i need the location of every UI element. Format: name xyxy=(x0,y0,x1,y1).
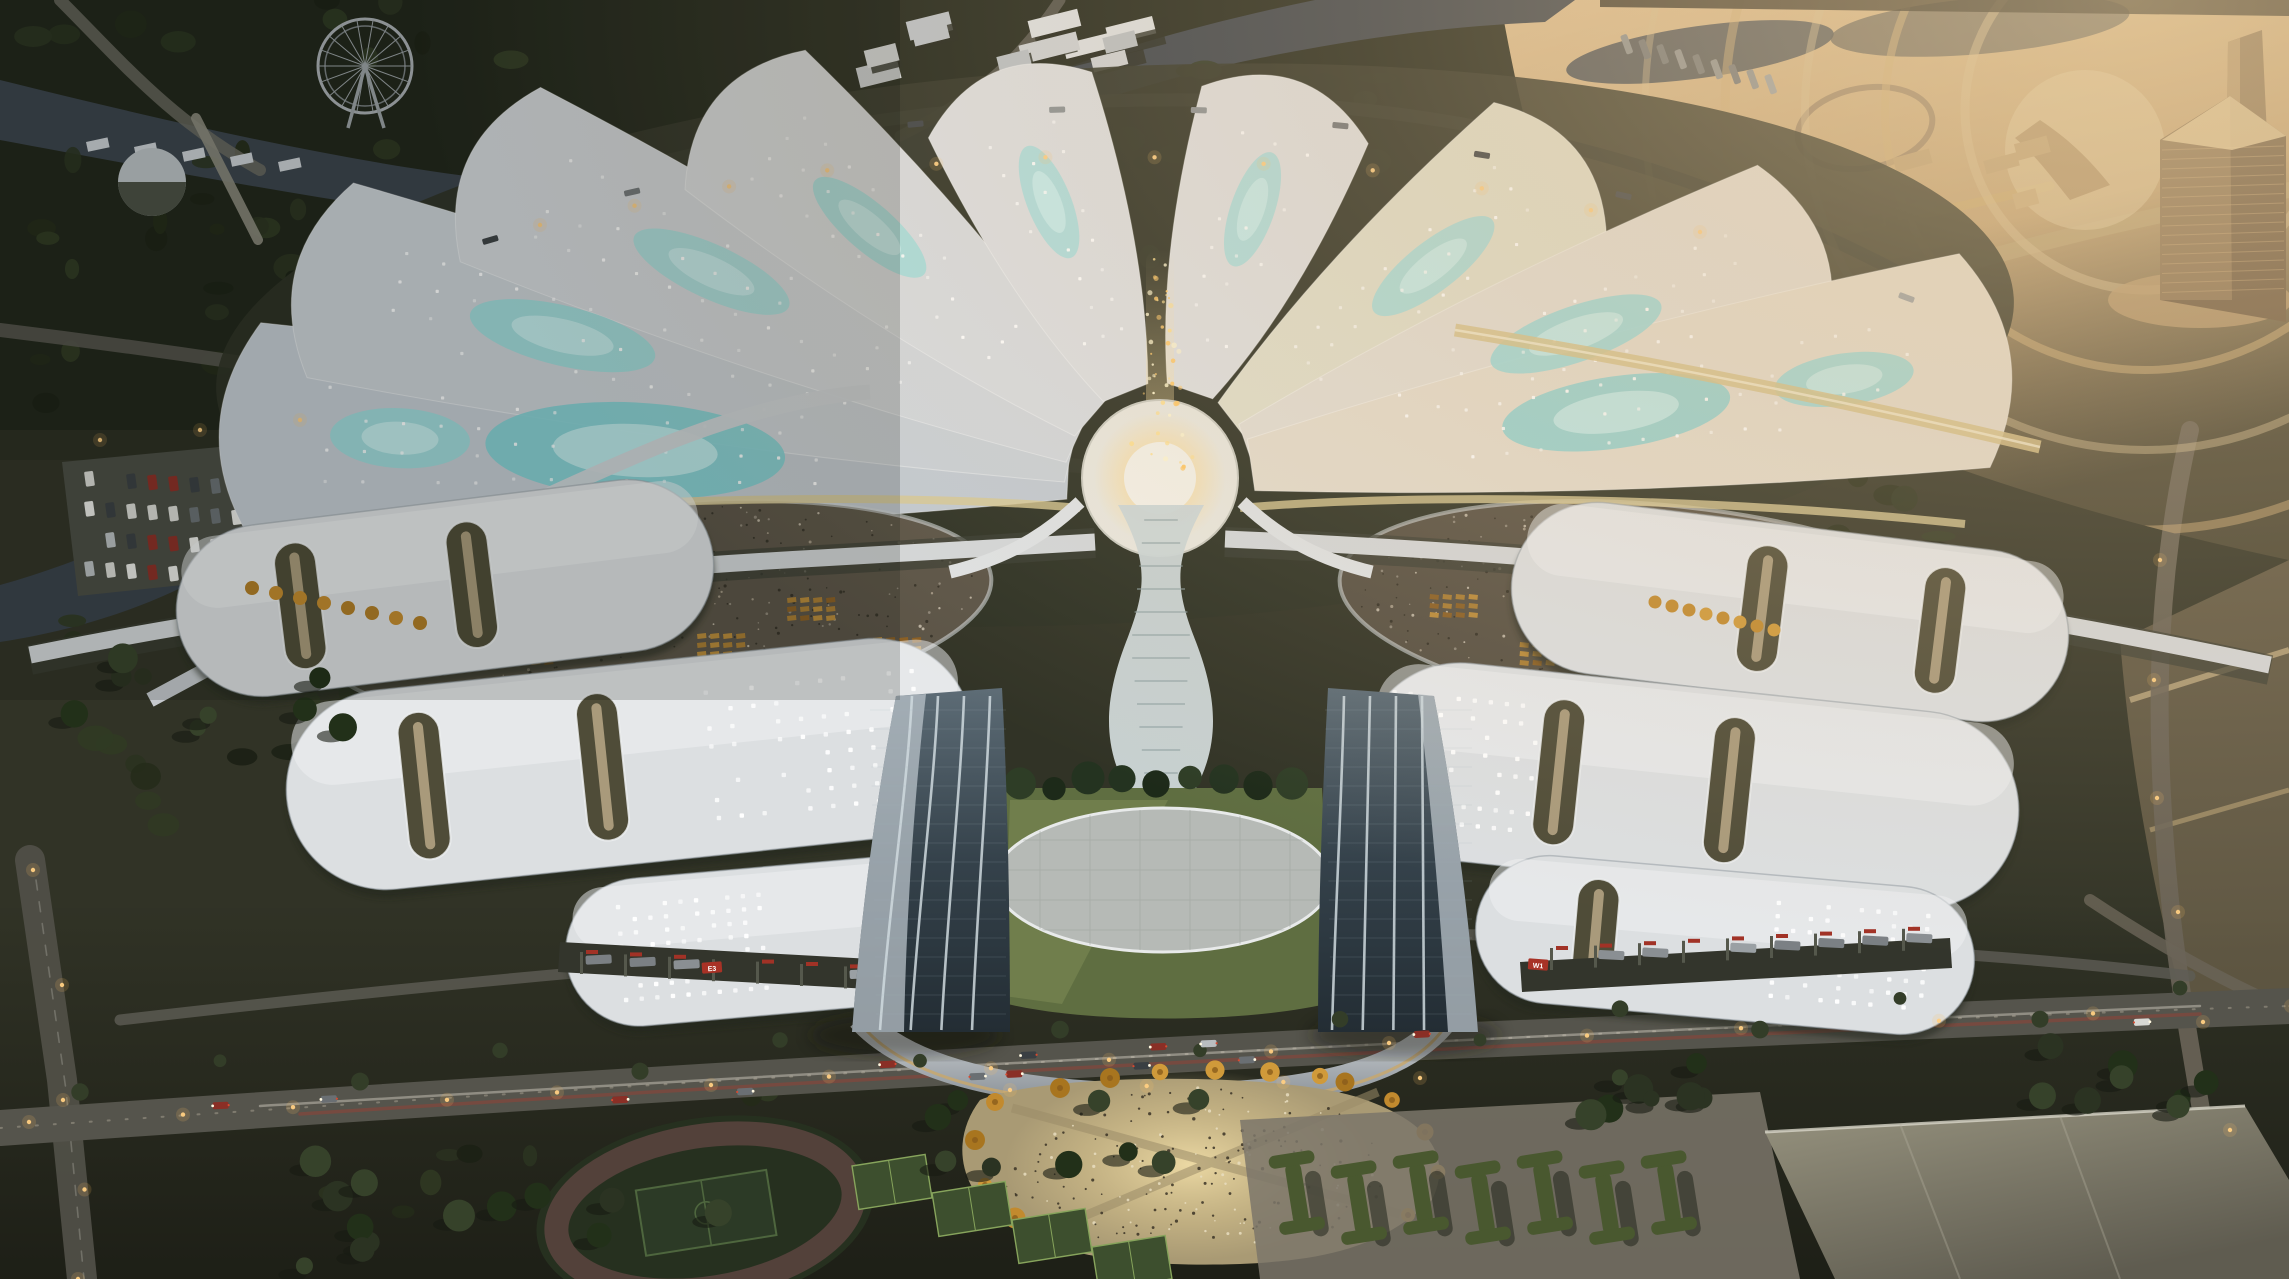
scene-svg: E3 W1 xyxy=(0,0,2289,1279)
nw-vignette xyxy=(0,0,900,700)
atmosphere xyxy=(0,0,2289,1279)
aerial-rendering-stage: E3 W1 xyxy=(0,0,2289,1279)
